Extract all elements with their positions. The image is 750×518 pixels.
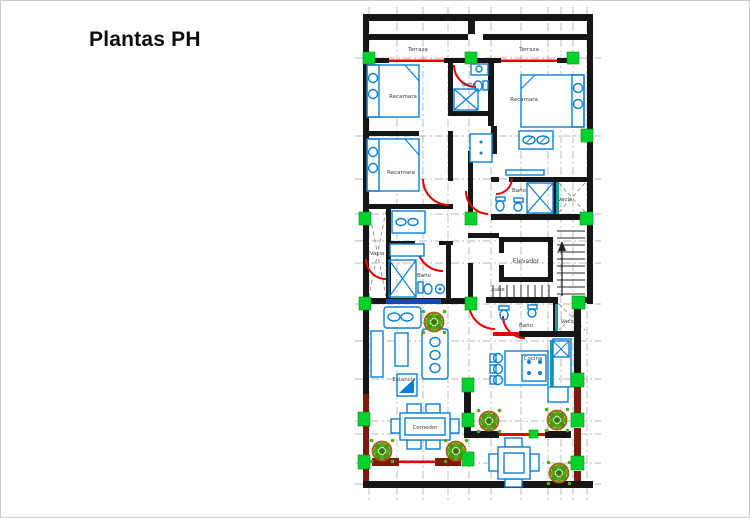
stairs-up-arrow (558, 241, 566, 296)
drawing-canvas: Plantas PH (0, 0, 750, 518)
label-bano-right: Baño (512, 188, 527, 194)
label-bano-lower-right: Baño (519, 323, 534, 329)
label-cocina: Cocina (524, 356, 543, 362)
floor-plan: Terraza Terraza Recamara Recamara Recama… (1, 1, 750, 518)
label-sube: sube (491, 287, 505, 293)
label-comedor: Comedor (412, 425, 438, 431)
label-terraza-left: Terraza (407, 47, 428, 53)
bed-icon (367, 65, 419, 117)
dresser-icon (392, 211, 425, 233)
plant-icon (545, 408, 570, 433)
label-bano-top: Baño (462, 82, 477, 88)
kitchen-furniture (490, 339, 571, 402)
label-vacio-left: Vacío (370, 250, 385, 257)
label-vacio-right-lower: Vacío (561, 318, 576, 325)
label-vacio-right-upper: Vacío (558, 196, 573, 203)
terrace-table-icon (489, 438, 539, 487)
dresser-icon (470, 134, 492, 162)
label-recamara-top-right: Recamara (510, 97, 538, 103)
plant-icon (477, 409, 502, 434)
bench-icon (390, 244, 424, 256)
label-elevador: Elevador (513, 258, 540, 265)
bed-icon (367, 139, 419, 191)
label-estancia: Estancia (392, 377, 415, 383)
label-recamara-mid-left: Recamara (387, 170, 415, 176)
label-recamara-top-left: Recamara (389, 94, 417, 100)
bathroom-fixtures (499, 305, 537, 320)
label-terraza-right: Terraza (518, 47, 539, 53)
label-bano-lower-left: Baño (417, 273, 432, 279)
tv-console-icon (519, 131, 553, 149)
